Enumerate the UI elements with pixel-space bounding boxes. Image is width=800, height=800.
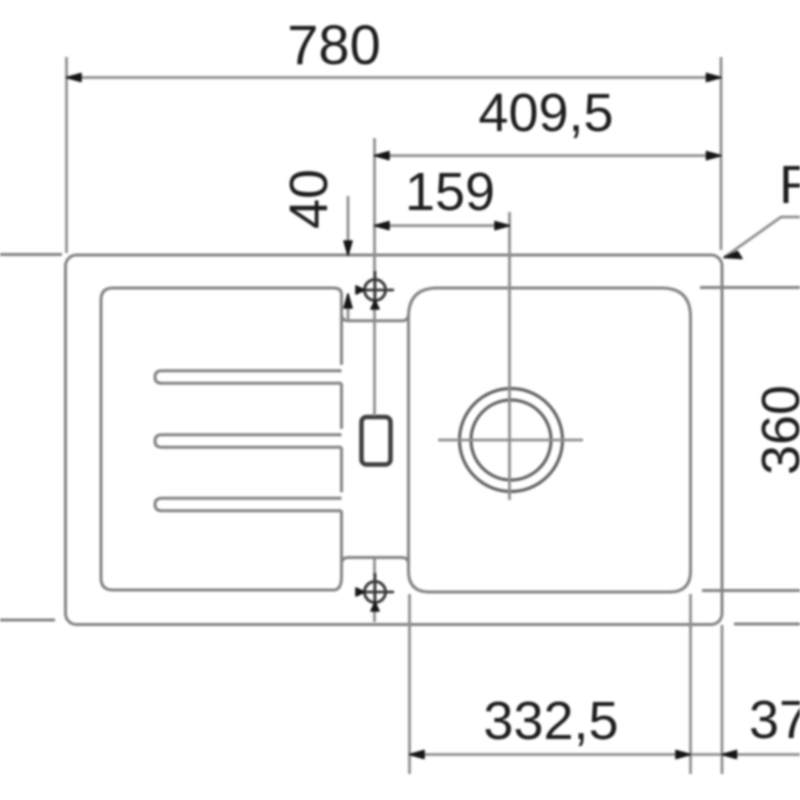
svg-text:R: R: [779, 155, 800, 215]
svg-text:40: 40: [279, 169, 339, 229]
svg-text:332,5: 332,5: [483, 691, 618, 751]
svg-text:159: 159: [405, 162, 495, 222]
svg-text:37,5: 37,5: [749, 690, 800, 750]
svg-text:409,5: 409,5: [478, 83, 613, 143]
svg-text:360: 360: [751, 385, 800, 475]
svg-text:780: 780: [287, 13, 380, 76]
